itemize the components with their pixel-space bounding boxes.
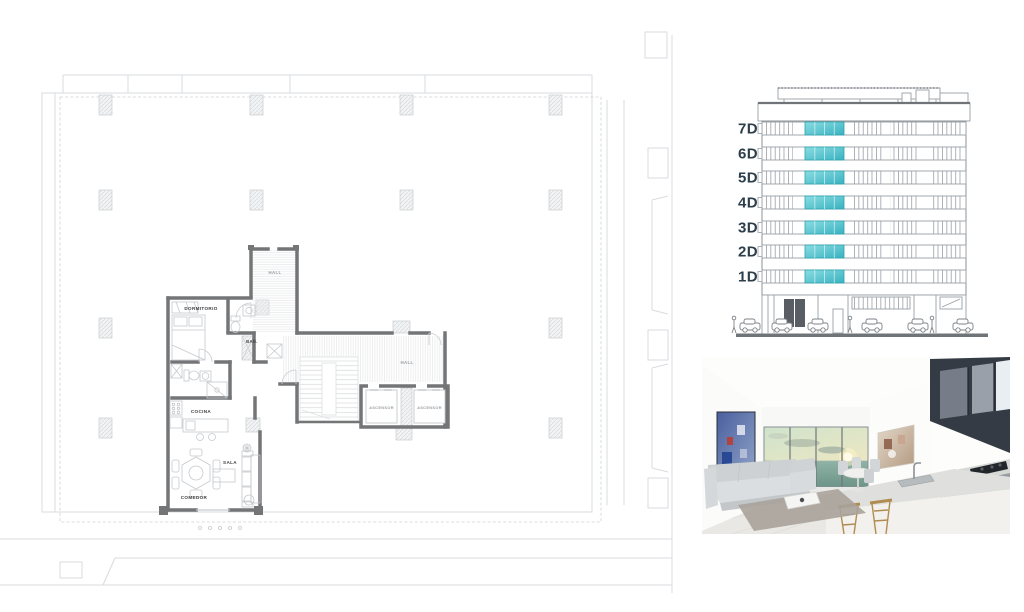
floor-band-1d (758, 270, 966, 283)
label-ascensor-right: ASCENSOR (417, 405, 442, 410)
floor-label-3d[interactable]: 3D (738, 220, 758, 237)
floor-label-4d[interactable]: 4D (738, 195, 758, 212)
coffee-table (213, 469, 235, 482)
kitchen-fixtures (170, 401, 228, 441)
floor-band-2d (758, 245, 966, 258)
parapet (758, 103, 970, 121)
floor-label-2d[interactable]: 2D (738, 244, 758, 261)
label-hall-main: HALL (400, 360, 413, 365)
setback-dashed-line (60, 97, 601, 522)
ground-line (736, 334, 988, 338)
floor-label-6d[interactable]: 6D (738, 146, 758, 163)
label-ascensor-left: ASCENSOR (369, 405, 394, 410)
brochure-page: HALL DORMITORIO BAÑ. COCINA SALA COMEDOR… (0, 0, 1024, 612)
floor-plan-panel: HALL DORMITORIO BAÑ. COCINA SALA COMEDOR… (0, 0, 690, 612)
label-hall-top: HALL (268, 270, 281, 275)
site-outline (0, 32, 672, 593)
label-sala: SALA (223, 460, 237, 465)
label-banio: BAÑ. (246, 339, 258, 344)
floor-band-6d (758, 147, 966, 160)
floor-band-4d (758, 196, 966, 209)
bathroom-2-fixtures (171, 364, 227, 398)
building-elevation-panel: 7D 6D 5D 4D 3D 2D 1D (700, 57, 1010, 347)
floor-band-7d (758, 122, 966, 135)
bed (172, 315, 205, 360)
interior-render-panel (702, 357, 1010, 534)
laundry-box (267, 344, 282, 358)
stairs (300, 357, 358, 421)
label-dormitorio: DORMITORIO (184, 306, 217, 311)
balcony-dots (199, 527, 242, 530)
floor-band-5d (758, 171, 966, 184)
sofa (242, 451, 260, 507)
plants (243, 444, 254, 505)
floor-label-1d[interactable]: 1D (738, 269, 758, 286)
armchair (790, 458, 816, 493)
wall-art-beige (878, 425, 914, 469)
label-cocina: COCINA (191, 409, 212, 414)
floor-label-7d[interactable]: 7D (738, 121, 758, 138)
floor-label-5d[interactable]: 5D (738, 170, 758, 187)
label-comedor: COMEDOR (181, 495, 208, 500)
roof-structures (778, 88, 968, 103)
floor-band-3d (758, 221, 966, 234)
